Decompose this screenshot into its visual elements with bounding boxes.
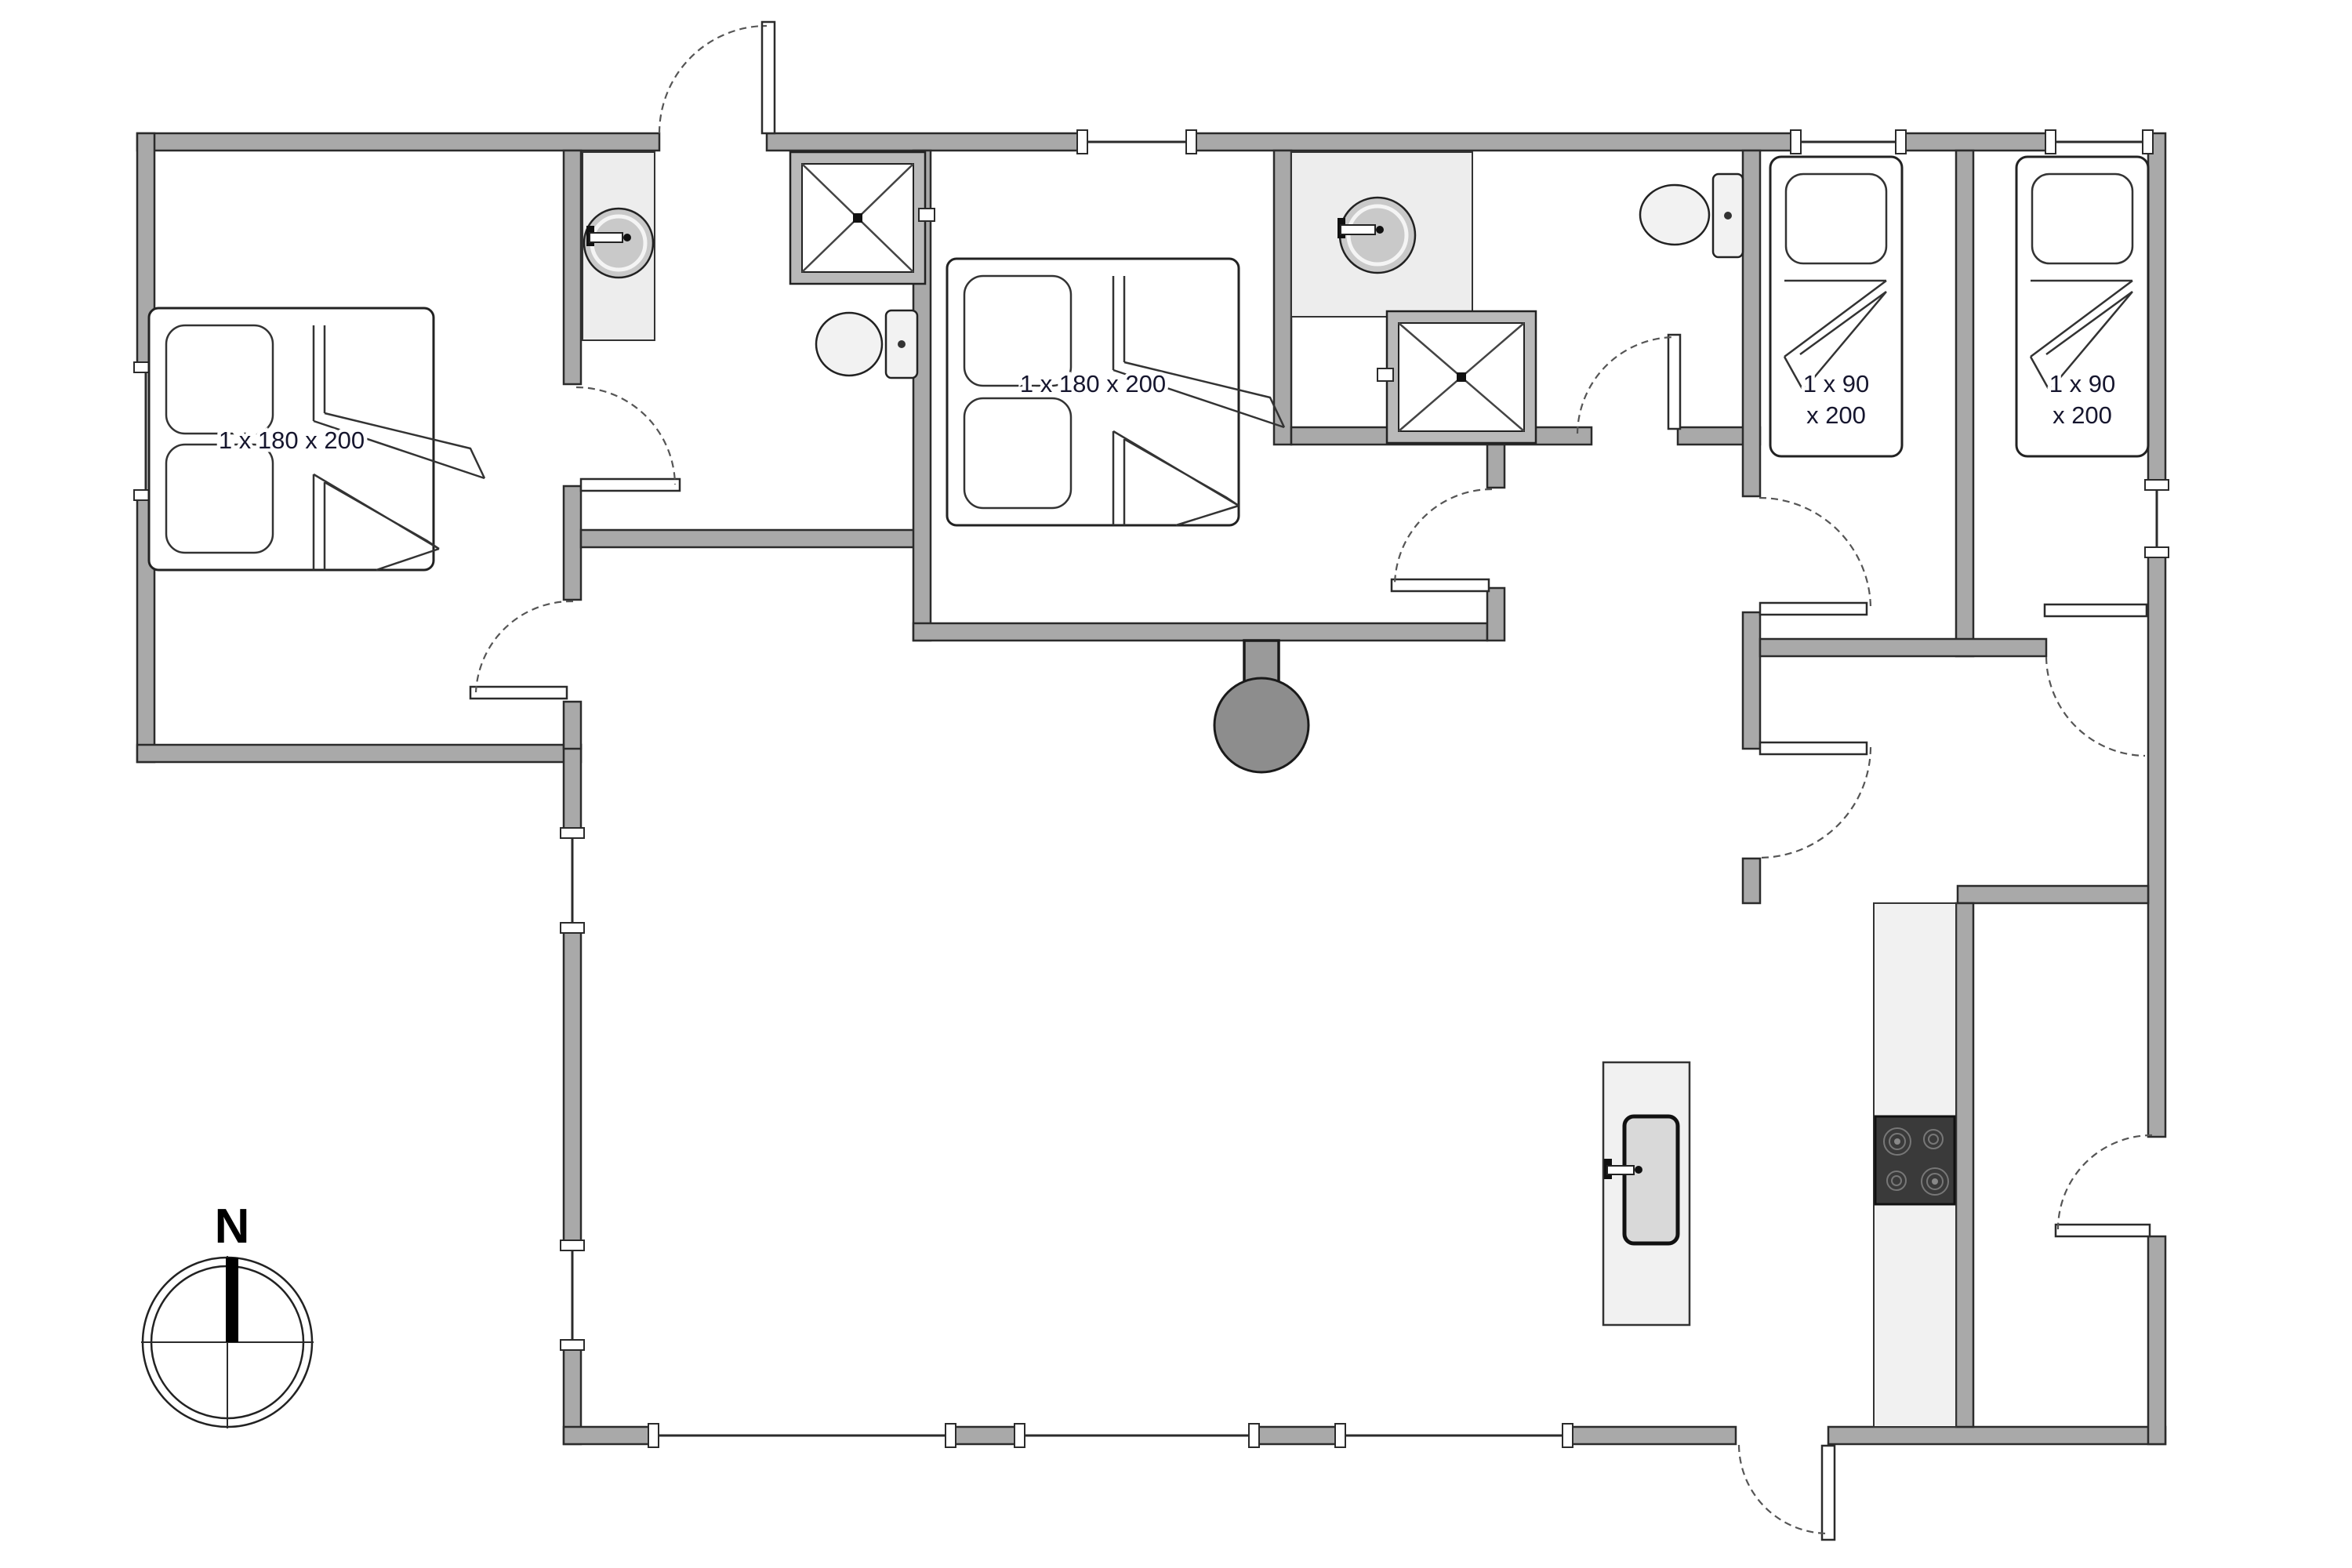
bed-size-label: x 200 bbox=[1806, 401, 1866, 429]
single-bed-1: 1 x 90 x 200 bbox=[1770, 157, 1902, 456]
cooktop-icon bbox=[1875, 1116, 1955, 1204]
bed-size-label: 1 x 90 bbox=[2049, 370, 2115, 397]
shower-icon bbox=[790, 152, 935, 284]
bathroom-west-door bbox=[576, 387, 680, 491]
floor-plan-page: 1 x 180 x 200 1 x 180 x 200 1 x 90 x 200… bbox=[0, 0, 2352, 1568]
bed-size-label: 1 x 180 x 200 bbox=[1020, 370, 1166, 397]
floor-plan-drawing: 1 x 180 x 200 1 x 180 x 200 1 x 90 x 200… bbox=[0, 0, 2352, 1568]
wood-stove-icon bbox=[1214, 641, 1308, 772]
compass-north-label: N bbox=[215, 1200, 250, 1254]
vanity-sink-icon bbox=[583, 152, 655, 340]
island-sink-icon bbox=[1624, 1116, 1678, 1243]
toilet-icon bbox=[816, 310, 917, 378]
shower-icon bbox=[1377, 311, 1536, 443]
bed-size-label: x 200 bbox=[2053, 401, 2112, 429]
vanity-sink-icon bbox=[1291, 152, 1472, 317]
toilet-icon bbox=[1640, 174, 1743, 257]
kitchen-counter bbox=[1874, 903, 1956, 1427]
single-room1-door bbox=[1759, 498, 1871, 615]
bedroom2-double-bed: 1 x 180 x 200 bbox=[947, 259, 1284, 525]
entrance-door-top bbox=[659, 22, 775, 133]
bedroom1-door bbox=[470, 601, 573, 699]
bed-size-label: 1 x 180 x 200 bbox=[219, 426, 365, 454]
hallway-door bbox=[1760, 742, 1871, 858]
bed-size-label: 1 x 90 bbox=[1803, 370, 1869, 397]
entrance-door-bottom bbox=[1739, 1445, 1835, 1540]
compass-rose: N bbox=[141, 1200, 314, 1428]
compass-needle-icon bbox=[226, 1258, 238, 1342]
bedroom1-double-bed: 1 x 180 x 200 bbox=[149, 308, 485, 625]
bedroom2-door bbox=[1392, 489, 1492, 591]
single-room2-door bbox=[2045, 604, 2147, 756]
single-bed-2: 1 x 90 x 200 bbox=[2016, 157, 2148, 456]
bathroom-east-door bbox=[1577, 335, 1680, 434]
kitchen-island bbox=[1603, 1062, 1690, 1325]
bathroom-west-fixtures bbox=[583, 152, 935, 378]
terrace-door bbox=[2056, 1135, 2152, 1236]
